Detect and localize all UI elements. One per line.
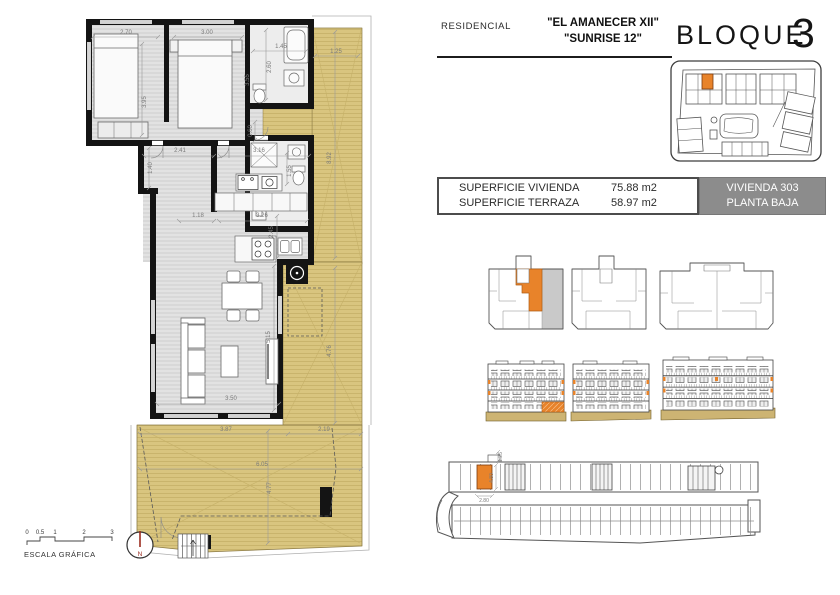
- dim-label: 3.26: [256, 213, 268, 219]
- scale-tick-label: 3: [110, 530, 114, 536]
- key-plan-terrace-shaded: [542, 269, 563, 329]
- sofa: [181, 318, 205, 404]
- dim-label: 2.80: [479, 498, 489, 504]
- dim-label: 1.25: [498, 452, 504, 462]
- dim-label: 3.55: [245, 74, 251, 86]
- surface-label: SUPERFICIE VIVIENDA: [459, 181, 611, 196]
- dim-label: 2.70: [120, 30, 132, 36]
- bed: [94, 34, 138, 118]
- dim-label: 3.87: [220, 427, 232, 433]
- dim-label: 1.25: [330, 49, 342, 55]
- key-plan-2: [572, 256, 646, 329]
- dim-label: 2.45: [269, 226, 275, 238]
- residence-name: "EL AMANECER XII" "SUNRISE 12": [528, 15, 678, 47]
- dim-label: 4.77: [267, 482, 273, 494]
- dim-label: 2.19: [318, 427, 330, 433]
- surface-row: SUPERFICIE VIVIENDA 75.88 m2: [459, 181, 697, 196]
- dim-label: 1.40: [148, 162, 154, 174]
- north-compass-icon: N: [127, 531, 153, 558]
- scale-tick-label: 0.5: [36, 530, 45, 536]
- scale-tick-label: 0: [25, 530, 29, 536]
- bathtub: [284, 27, 308, 63]
- site-plan-thumbnail: [666, 56, 826, 166]
- dim-label: 2.41: [174, 148, 186, 154]
- dim-label: 3.50: [225, 396, 237, 402]
- bloque-number: 3: [792, 10, 815, 57]
- key-plans: [483, 248, 833, 343]
- nightstand: [232, 40, 242, 52]
- building-elevations: [483, 352, 840, 437]
- sink: [284, 70, 304, 86]
- dining-table: [222, 283, 262, 309]
- dim-label: 4.76: [327, 345, 333, 357]
- chair: [246, 310, 259, 321]
- surface-table: SUPERFICIE VIVIENDA 75.88 m2 SUPERFICIE …: [437, 177, 699, 215]
- dim-label: 5.15: [266, 331, 272, 343]
- kitchen-counter: [215, 193, 307, 211]
- dim-label: 6.05: [256, 462, 268, 468]
- key-plan-1: [489, 256, 563, 329]
- unit-floor: PLANTA BAJA: [727, 196, 799, 211]
- unit-number: VIVIENDA 303: [726, 181, 798, 196]
- surface-info-box: SUPERFICIE VIVIENDA 75.88 m2 SUPERFICIE …: [437, 177, 826, 215]
- elevation-2-floors: [573, 370, 649, 410]
- dim-label: 3.16: [253, 148, 265, 154]
- chair: [227, 310, 240, 321]
- dim-label: 4.80: [489, 473, 495, 483]
- surface-row: SUPERFICIE TERRAZA 58.97 m2: [459, 196, 697, 211]
- hob: [252, 238, 274, 260]
- dim-label: 3.00: [201, 30, 213, 36]
- dim-label: 8.92: [327, 152, 333, 164]
- elevation-2: [571, 361, 651, 421]
- garage-elevator: [715, 466, 723, 474]
- sink: [288, 145, 305, 159]
- terrace-stairs: [178, 534, 208, 558]
- dim-label: 1.18: [192, 213, 204, 219]
- key-plan-3: [660, 263, 773, 329]
- residencial-label: RESIDENCIAL: [441, 21, 511, 32]
- wardrobe: [98, 122, 148, 138]
- garage-plan: 1.25 4.80 2.80: [430, 444, 775, 569]
- scale-bar: 0 0.5 1 2 3 ESCALA GRÁFICA: [24, 530, 114, 559]
- residence-name-line2: "SUNRISE 12": [528, 31, 678, 47]
- terrace-passage: [263, 108, 312, 138]
- plan-sheet: 2.70 3.00 1.45 1.25 3.95 3.55 2.60 1.40 …: [0, 0, 840, 595]
- elevation-3-floors: [663, 366, 773, 406]
- coffee-table: [221, 346, 238, 377]
- dim-label: 2.60: [267, 61, 273, 73]
- dim-label: 3.95: [142, 96, 148, 108]
- bloque-label: BLOQUE: [676, 20, 807, 51]
- dim-label: 1.55: [287, 165, 293, 177]
- north-label: N: [138, 551, 143, 558]
- residence-name-line1: "EL AMANECER XII": [528, 15, 678, 31]
- chair: [246, 271, 259, 282]
- elevation-1: [486, 361, 566, 421]
- unit-id-panel: VIVIENDA 303 PLANTA BAJA: [699, 177, 826, 215]
- surface-label: SUPERFICIE TERRAZA: [459, 196, 611, 211]
- scale-caption: ESCALA GRÁFICA: [24, 550, 96, 559]
- surface-value: 75.88 m2: [611, 181, 657, 196]
- header-underline: [437, 56, 672, 58]
- bed: [178, 40, 232, 128]
- surface-value: 58.97 m2: [611, 196, 657, 211]
- nightstand: [170, 40, 178, 52]
- dim-label: 0.60: [248, 125, 254, 137]
- chair: [227, 271, 240, 282]
- floor-plan-drawing: 2.70 3.00 1.45 1.25 3.95 3.55 2.60 1.40 …: [0, 0, 440, 595]
- elevation-3: [661, 357, 775, 420]
- scale-tick-label: 1: [53, 530, 57, 536]
- dim-label: 1.45: [275, 44, 287, 50]
- highlighted-block: [702, 74, 713, 89]
- scale-tick-label: 2: [82, 530, 86, 536]
- elevation-unit-highlight: [542, 402, 564, 412]
- washer-unit: [286, 262, 308, 284]
